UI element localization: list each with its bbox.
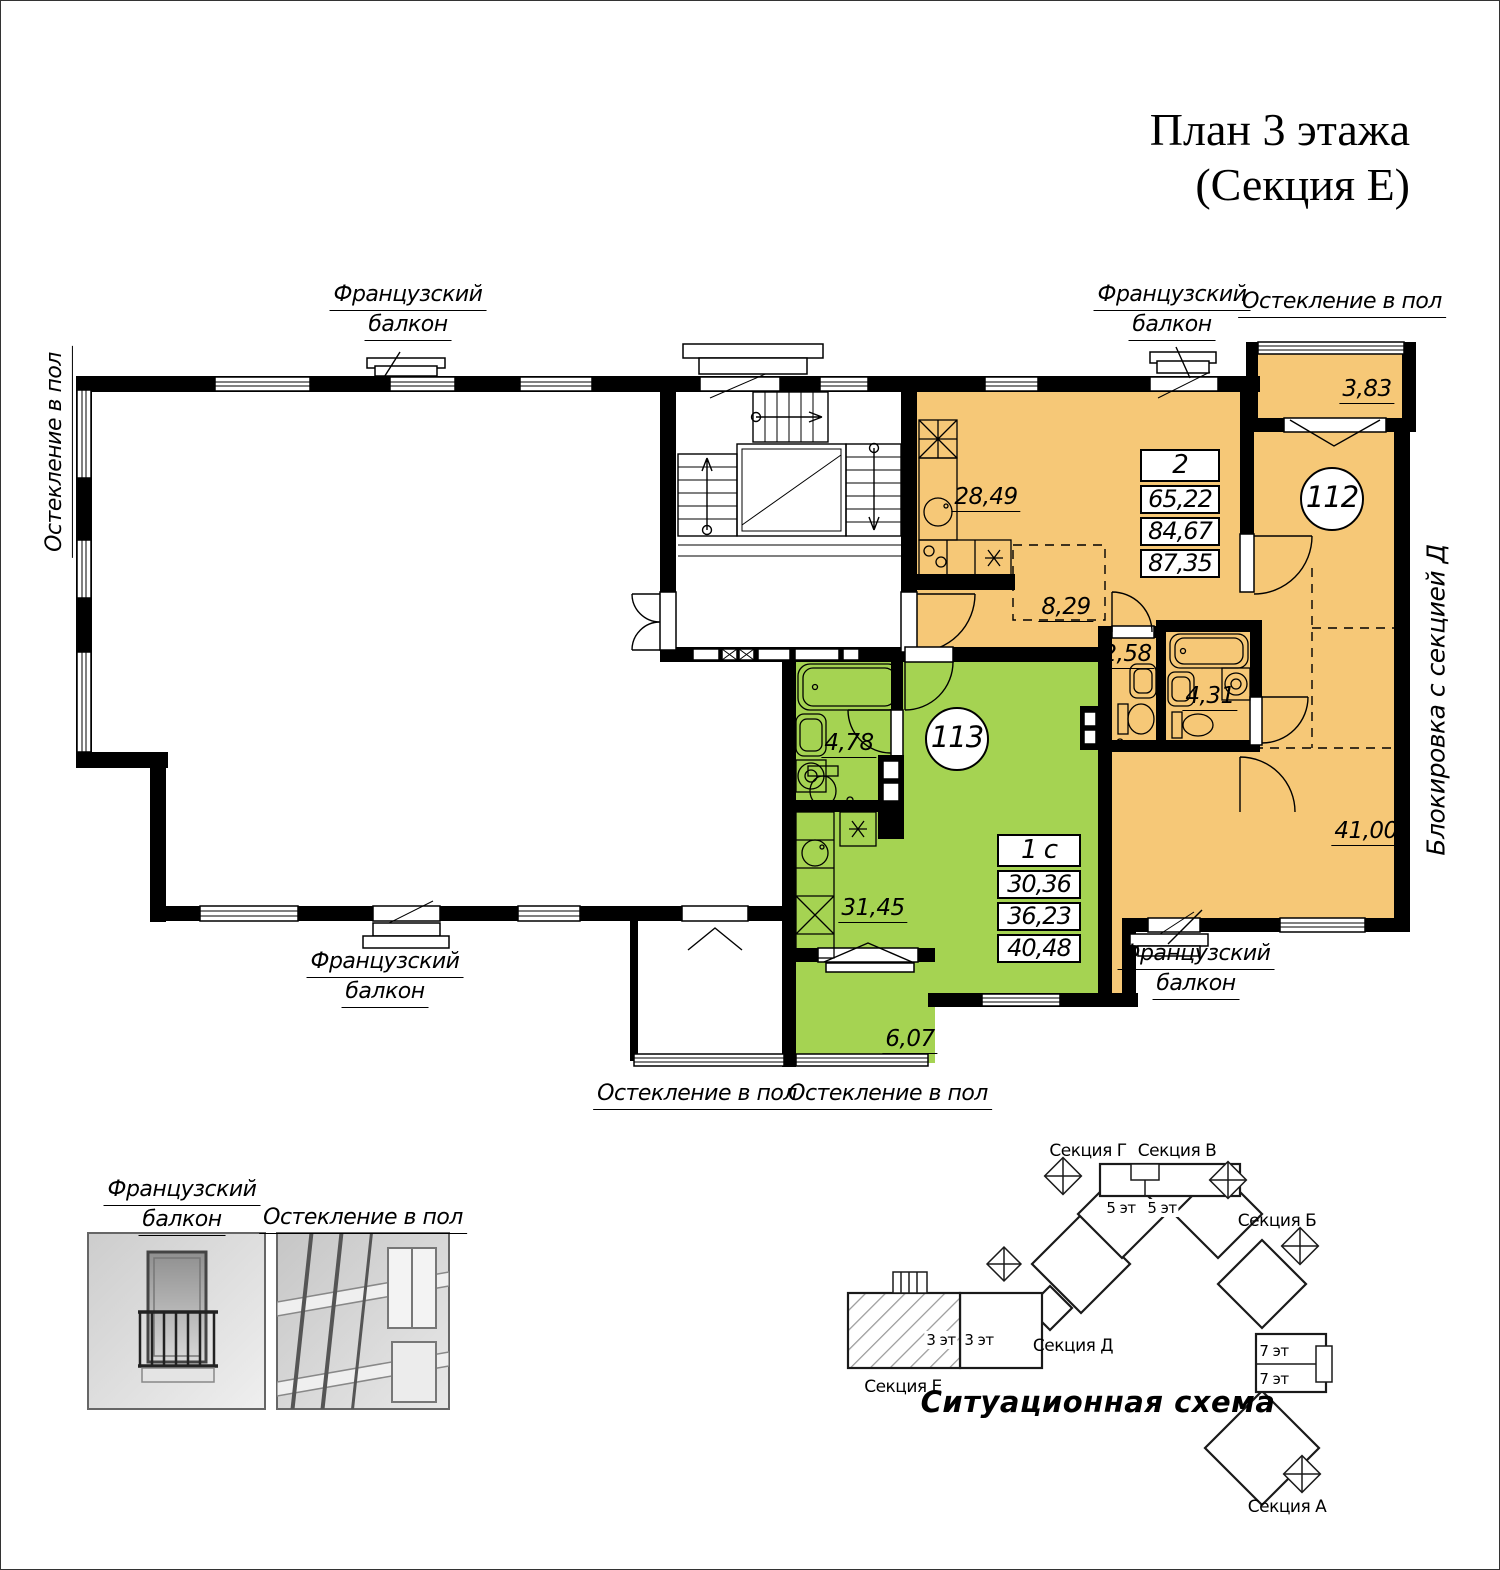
apartment-113-badge[interactable]: 113 [925, 707, 989, 771]
area-113-room: 31,45 [838, 895, 907, 923]
apt113-area-total: 40,48 [997, 934, 1081, 963]
window-bottom-1 [200, 906, 298, 921]
label-french-balcony-bottom-right: Французский балкон [1118, 940, 1275, 1000]
scheme-section-b: Секция Б [1238, 1211, 1317, 1231]
scheme-floors-5a: 5 эт [1104, 1199, 1137, 1217]
label-blocking-section-d: Блокировка с секцией Д [1421, 538, 1456, 861]
area-112-wc: 2,58 [1099, 641, 1154, 669]
scheme-section-g: Секция Г [1049, 1141, 1126, 1161]
window-top-4 [820, 377, 868, 391]
scheme-section-a: Секция А [1248, 1497, 1326, 1517]
floor-plan-drawing: .w{fill:#000;} .ln{stroke:#000;stroke-wi… [0, 0, 1500, 1570]
page-title: План 3 этажа (Секция Е) [1150, 102, 1410, 212]
apt113-area-apartment: 36,23 [997, 902, 1081, 931]
glazing-left-2 [77, 540, 91, 598]
area-113-bathroom: 4,78 [821, 730, 876, 758]
apt112-area-living: 65,22 [1140, 485, 1220, 514]
area-112-hall: 8,29 [1038, 594, 1093, 622]
area-112-room: 41,00 [1331, 818, 1400, 846]
apartment-113-table: 1 с 30,36 36,23 40,48 [997, 834, 1081, 963]
stairwell [678, 392, 901, 660]
apt113-rooms-count: 1 с [997, 834, 1081, 867]
label-glazing-left: Остекление в пол [41, 346, 73, 558]
window-top-2 [390, 377, 455, 391]
apartment-112-badge[interactable]: 112 [1300, 467, 1364, 531]
label-glazing-top-right: Остекление в пол [1238, 288, 1446, 318]
apt112-area-apartment: 84,67 [1140, 517, 1220, 546]
floor-plan-page: .w{fill:#000;} .ln{stroke:#000;stroke-wi… [0, 0, 1500, 1570]
glazing-left-1 [77, 390, 91, 478]
label-french-balcony-top-right: Французский балкон [1094, 281, 1251, 341]
window-113-bottom [982, 994, 1060, 1006]
label-french-balcony-top-left: Французский балкон [330, 281, 487, 341]
window-top-5 [985, 377, 1038, 391]
page-title-line1: План 3 этажа [1150, 102, 1410, 157]
window-112-bottom [1280, 918, 1365, 932]
window-top-1 [215, 377, 310, 391]
legend-image-glazing [277, 1228, 449, 1414]
glazing-balcony-113 [796, 1054, 928, 1066]
area-113-balcony: 6,07 [882, 1026, 937, 1054]
scheme-section-d: Секция Д [1033, 1336, 1113, 1356]
scheme-floors-3a: 3 эт [924, 1331, 957, 1349]
scheme-title: Ситуационная схема [921, 1385, 1276, 1419]
scheme-floors-3b: 3 эт [962, 1331, 995, 1349]
apartment-112-table: 2 65,22 84,67 87,35 [1140, 449, 1220, 578]
glazing-balcony-112 [1258, 342, 1404, 354]
area-112-bathroom: 4,31 [1182, 683, 1237, 711]
area-112-balcony: 3,83 [1339, 376, 1394, 404]
french-window-top-middle [700, 372, 780, 398]
scheme-floors-7a: 7 эт [1257, 1342, 1290, 1360]
area-112-kitchen: 28,49 [951, 484, 1020, 512]
situational-scheme [848, 1158, 1332, 1505]
window-left-3 [77, 652, 91, 752]
apt112-area-total: 87,35 [1140, 549, 1220, 578]
label-french-balcony-bottom-left: Французский балкон [307, 948, 464, 1008]
page-title-line2: (Секция Е) [1150, 157, 1410, 212]
glazing-balcony-white [634, 1054, 784, 1066]
legend-label-french-balcony: Французский балкон [104, 1176, 261, 1236]
label-glazing-bottom-2: Остекление в пол [784, 1080, 992, 1110]
apt112-rooms-count: 2 [1140, 449, 1220, 482]
legend-label-glazing: Остекление в пол [259, 1204, 467, 1234]
legend-image-french-balcony [88, 1233, 265, 1409]
apt113-area-living: 30,36 [997, 870, 1081, 899]
window-top-3 [520, 377, 592, 391]
label-glazing-bottom-1: Остекление в пол [593, 1080, 801, 1110]
scheme-floors-5b: 5 эт [1145, 1199, 1178, 1217]
window-bottom-2 [518, 906, 580, 921]
legend-pictures [88, 1228, 449, 1414]
scheme-section-v: Секция В [1138, 1141, 1217, 1161]
